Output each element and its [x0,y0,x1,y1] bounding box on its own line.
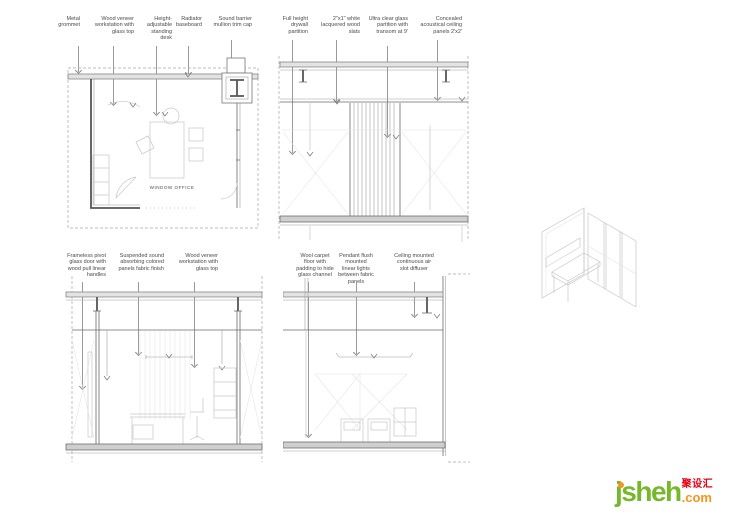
section-floor [280,216,468,242]
section-drawing-office-long [60,270,265,466]
section-floor [66,444,262,453]
annotation-label: Radiator baseboard [174,16,202,29]
section-boundary [72,276,262,462]
room-label: WINDOW OFFICE [150,185,195,190]
annotation-label: Metal grommet [56,16,80,29]
annotation-label: Wood veneer workstation with glass top [88,16,134,35]
plan-steel-column [222,58,252,103]
axon-desk [552,253,600,302]
section-floor [283,442,445,451]
logo-chinese-name: 聚设汇 [682,480,714,490]
section-wood-slats [350,103,400,216]
site-logo[interactable]: jsheh 聚设汇 .com [615,478,713,506]
logo-j-dot [618,482,624,488]
annotation-label: Full height drywall partition [274,16,308,35]
section-boundary [279,56,468,240]
axon-left-wall [542,208,584,298]
logo-domain-suffix: .com [682,491,714,504]
section-drawing-slat-wall [275,50,475,246]
section-furniture [315,374,416,443]
axonometric-drawing [528,200,668,342]
plan-arrows [130,73,191,116]
annotation-label: Concealed acoustical ceiling panels 2'x2… [412,16,462,35]
section-drawing-pendant-lights [283,268,475,468]
annotation-label: Sound barrier mullion trim cap [208,16,252,29]
logo-wordmark: jsheh [615,478,681,506]
plan-drawing: WINDOW OFFICE [55,55,265,237]
annotation-label: Height-adjustable standing desk [140,16,172,42]
drawing-sheet: Metal grommet Wood veneer workstation wi… [0,0,730,516]
plan-furniture [108,101,237,208]
section-suspended-panel [104,330,225,380]
annotation-label: 2"x1" white lacquered wood slats [312,16,360,35]
annotation-label: Ultra clear glass partition with transom… [366,16,408,35]
section-structure [280,62,468,102]
section-slat-backdrop [140,331,190,420]
section-structure [283,274,470,462]
